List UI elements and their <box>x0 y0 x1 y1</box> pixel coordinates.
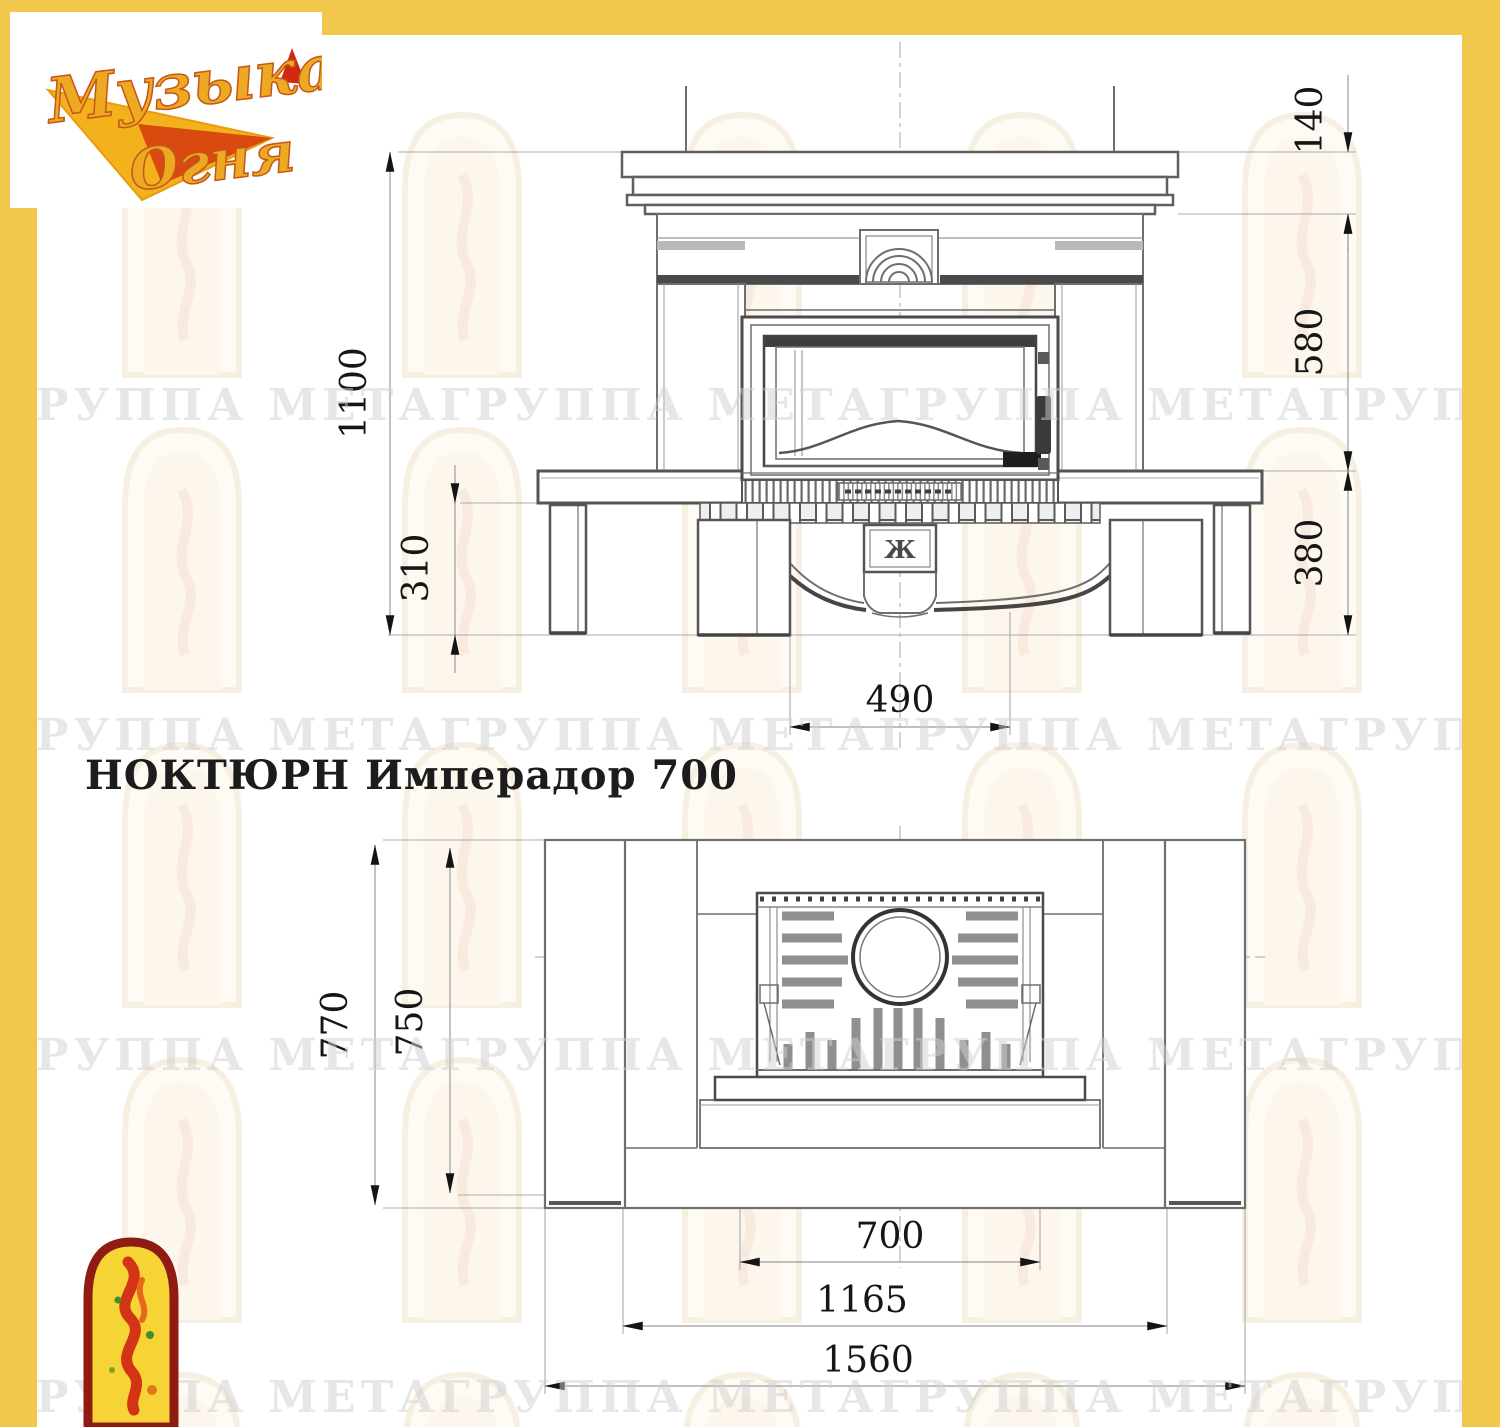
music-of-fire-logo-icon: Музыка Огня <box>10 12 322 208</box>
dim-front-duct-label: 490 <box>866 680 935 721</box>
firebox-door <box>742 317 1058 480</box>
stove-insert-plan <box>715 893 1085 1100</box>
brand-logo: Музыка Огня <box>10 12 322 208</box>
dim-plan-width: 1560 <box>545 1340 1245 1386</box>
flame-arch-icon <box>70 1230 200 1427</box>
dim-plan-opening-label: 700 <box>856 1216 925 1257</box>
model-title: НОКТЮРН Имперадор 700 <box>85 752 885 799</box>
dim-front-cap-label: 140 <box>1290 86 1331 155</box>
plan-view-drawing <box>545 840 1245 1208</box>
dim-plan-depth: 770 <box>315 845 375 1205</box>
dim-front-hearth-label: 310 <box>396 534 437 603</box>
door-handle <box>1036 396 1051 454</box>
air-grille <box>742 480 1058 503</box>
dim-front-total-label: 1100 <box>334 347 375 439</box>
dim-front-body-label: 580 <box>1290 308 1331 377</box>
base-emblem-glyph: Ж <box>884 535 916 564</box>
dim-plan-mid-label: 1165 <box>816 1280 908 1321</box>
dim-plan-depth-label: 770 <box>315 991 356 1060</box>
technical-drawing: 1100 310 140 580 380 <box>0 0 1500 1427</box>
dim-plan-width-label: 1560 <box>822 1340 914 1381</box>
dim-front-total: 1100 <box>334 152 390 635</box>
catalog-page: 1100 310 140 580 380 <box>0 0 1500 1427</box>
dim-front-base-label: 380 <box>1290 519 1331 588</box>
page-border-left <box>0 0 37 1427</box>
fan-ornament <box>860 230 938 284</box>
dim-plan-depth-inner-label: 750 <box>390 988 431 1057</box>
page-border-right <box>1462 0 1500 1427</box>
